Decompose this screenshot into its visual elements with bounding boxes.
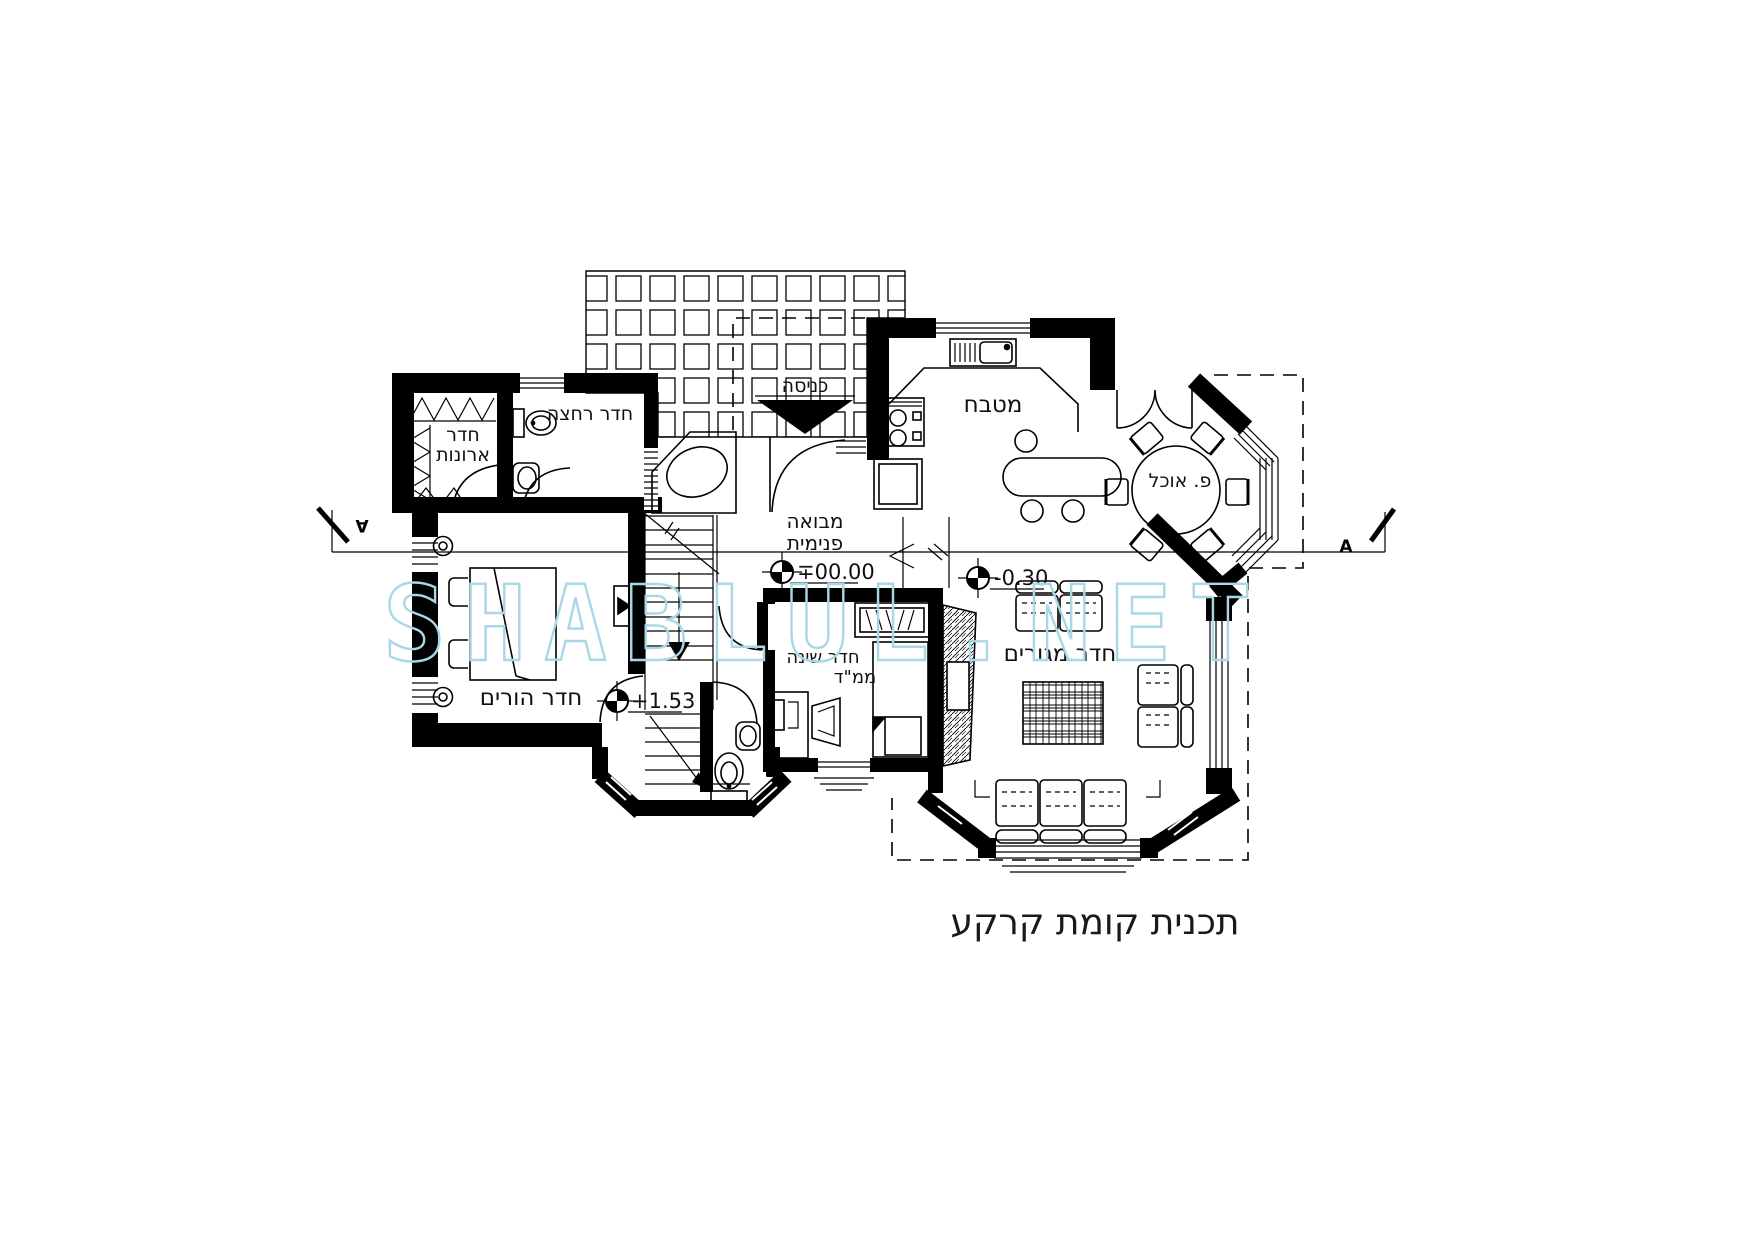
entrance-label: כניסה: [782, 375, 829, 397]
floor-plan-canvas: A A ∓00.00 -0.30 +1.53: [0, 0, 1754, 1240]
floor-plan-sheet: A A ∓00.00 -0.30 +1.53: [0, 0, 1754, 1240]
elevation-stairs-label: +1.53: [631, 689, 695, 713]
closet-room-label-1: חדר: [446, 424, 480, 446]
section-label-left: A: [355, 515, 369, 535]
bathtub-icon: [659, 438, 734, 506]
rug-icon: [1023, 682, 1103, 744]
sofa-icon: [996, 780, 1038, 826]
dining-chair-icon: [1106, 479, 1128, 505]
stool-icon: [1021, 500, 1043, 522]
kitchen-label: מטבח: [964, 392, 1023, 418]
foyer-label-1: מבואה: [786, 509, 843, 533]
elevation-marker-stairs: +1.53: [597, 681, 695, 721]
stool-icon: [1062, 500, 1084, 522]
toilet-tank-icon: [513, 409, 524, 437]
dining-nook-label: פ. אוכל: [1149, 470, 1212, 492]
small-bath-door-arc: [713, 682, 757, 724]
dining-chair-icon: [1226, 479, 1248, 505]
entrance-door-arc: [770, 437, 845, 512]
kitchen-fixtures: [874, 339, 1121, 522]
foyer-label-2: פנימית: [787, 531, 843, 555]
chair-icon: [812, 698, 840, 746]
watermark-text: SHABLUL.NET: [383, 563, 1270, 685]
cabinet-icon: [874, 459, 922, 509]
section-label-right: A: [1339, 537, 1353, 557]
section-line-a-a: A A: [318, 508, 1394, 557]
floor-corner-marks: [975, 780, 1160, 797]
stool-icon: [1015, 430, 1037, 452]
section-marker-stroke: [318, 508, 348, 542]
section-marker-stroke: [1371, 509, 1394, 541]
tub-enclosure: [652, 432, 736, 513]
parents-room-label: חדר הורים: [480, 685, 583, 711]
closet-room-label-2: ארונות: [436, 444, 490, 466]
french-door-arcs: [1117, 390, 1192, 428]
entrance-porch: [586, 271, 905, 453]
entrance-step-lines: [836, 441, 866, 453]
sheet-title: תכנית קומת קרקע: [950, 902, 1239, 943]
porch-tile-floor: [586, 271, 905, 437]
bathroom-label: חדר רחצה: [547, 403, 633, 425]
breakfast-bar: [1003, 458, 1121, 496]
wardrobe-hanger-icon: [408, 398, 496, 421]
